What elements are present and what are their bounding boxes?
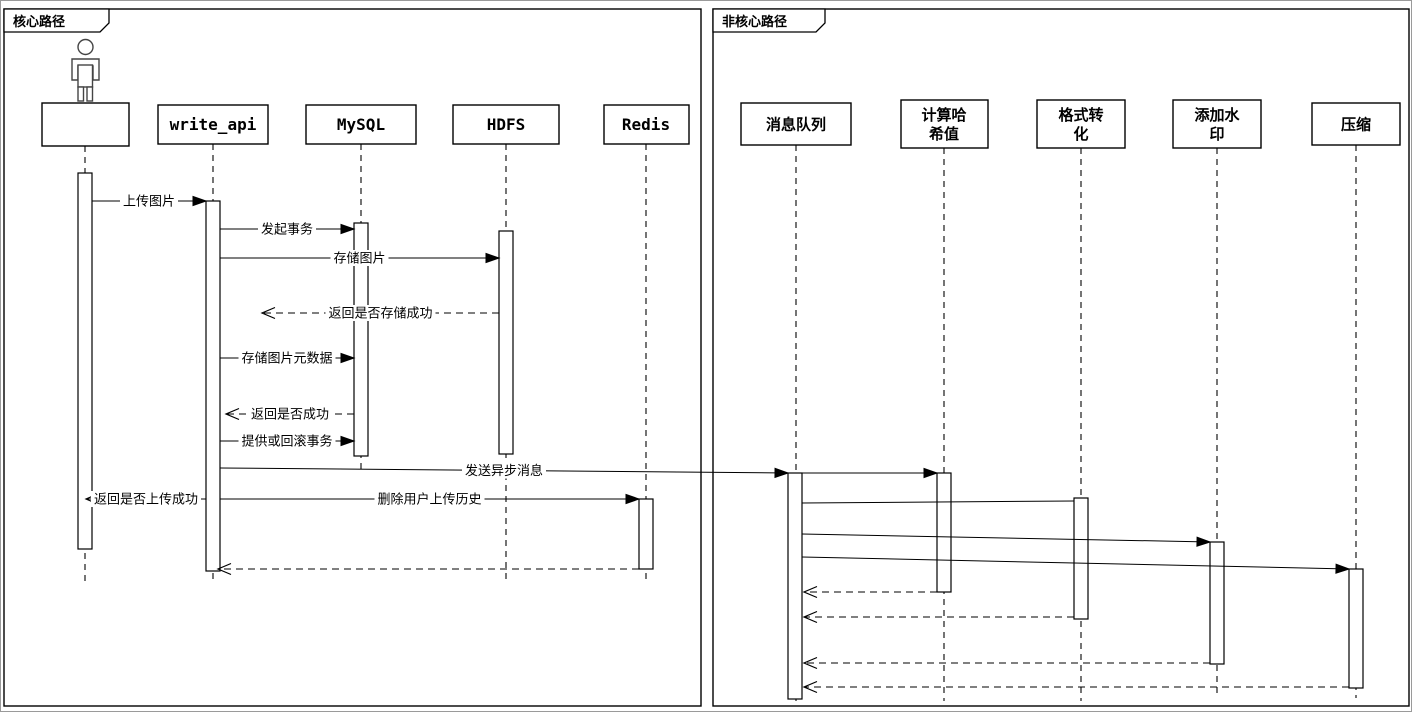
actor-icon xyxy=(72,40,99,102)
message-label-return-store-result: 返回是否存储成功 xyxy=(328,307,432,322)
participant-label-add-watermark: 添加水 xyxy=(1194,106,1240,124)
message-queue-activation xyxy=(788,473,802,699)
message-format-return xyxy=(804,612,1074,623)
message-return-upload-result: 返回是否上传成功 xyxy=(86,491,206,508)
participant-label-format-convert: 化 xyxy=(1073,125,1088,143)
participant-label-compress: 压缩 xyxy=(1341,116,1371,134)
message-hash-return xyxy=(804,587,937,598)
hdfs-activation xyxy=(499,231,513,454)
participant-label-write-api: write_api xyxy=(170,115,257,134)
message-begin-transaction: 发起事务 xyxy=(220,221,354,238)
message-store-image: 存储图片 xyxy=(220,250,499,267)
message-send-async-message: 发送异步消息 xyxy=(220,463,788,480)
message-return-store-result: 返回是否存储成功 xyxy=(262,305,499,322)
message-line-mq-to-watermark xyxy=(802,534,1210,542)
actor-head xyxy=(78,40,93,55)
participant-label-mysql: MySQL xyxy=(337,115,385,134)
redis-activation xyxy=(639,499,653,569)
arrowhead-filled-upload-image xyxy=(193,197,206,206)
message-label-store-image-metadata: 存储图片元数据 xyxy=(241,352,332,367)
message-label-upload-image: 上传图片 xyxy=(123,195,175,210)
arrowhead-filled-delete-upload-history xyxy=(626,495,639,504)
message-upload-image: 上传图片 xyxy=(92,193,206,210)
arrowhead-filled-store-image xyxy=(486,254,499,263)
message-mq-to-watermark xyxy=(802,534,1210,546)
participant-label-format-convert: 格式转 xyxy=(1058,106,1103,124)
user-activation xyxy=(78,173,92,549)
actor-left-leg xyxy=(78,87,84,101)
message-label-commit-or-rollback: 提供或回滚事务 xyxy=(241,434,332,450)
message-label-delete-upload-history: 删除用户上传历史 xyxy=(377,492,481,508)
participant-box-user xyxy=(42,103,129,146)
arrowhead-filled-mq-to-watermark xyxy=(1197,537,1210,546)
message-delete-upload-history: 删除用户上传历史 xyxy=(220,491,639,508)
message-redis-return xyxy=(218,564,639,575)
message-mq-to-hash xyxy=(802,469,937,478)
compress-activation xyxy=(1349,569,1363,688)
frame-label-non-core-path: 非核心路径 xyxy=(722,14,787,30)
actor-right-leg xyxy=(87,87,93,101)
compute-hash-activation xyxy=(937,473,951,592)
format-convert-activation xyxy=(1074,498,1088,619)
arrowhead-filled-store-image-metadata xyxy=(341,354,354,363)
message-store-image-metadata: 存储图片元数据 xyxy=(220,350,354,367)
actor-torso xyxy=(78,65,93,87)
message-label-store-image: 存储图片 xyxy=(333,252,385,267)
arrowhead-filled-send-async-message xyxy=(775,468,788,477)
message-label-begin-transaction: 发起事务 xyxy=(261,222,313,238)
participant-label-redis: Redis xyxy=(622,115,670,134)
frame-label-core-path: 核心路径 xyxy=(13,14,65,30)
sequence-diagram: 核心路径非核心路径上传图片发起事务存储图片返回是否存储成功存储图片元数据返回是否… xyxy=(0,0,1412,712)
add-watermark-activation xyxy=(1210,542,1224,664)
message-compress-return xyxy=(804,682,1349,693)
message-commit-or-rollback: 提供或回滚事务 xyxy=(220,433,354,450)
message-label-send-async-message: 发送异步消息 xyxy=(465,463,543,479)
participant-label-hdfs: HDFS xyxy=(487,115,526,134)
message-label-return-upload-result: 返回是否上传成功 xyxy=(94,493,198,508)
participant-label-message-queue: 消息队列 xyxy=(766,116,826,134)
sequence-diagram-svg: 核心路径非核心路径上传图片发起事务存储图片返回是否存储成功存储图片元数据返回是否… xyxy=(1,1,1412,712)
arrowhead-filled-mq-to-hash xyxy=(924,469,937,478)
message-label-return-result: 返回是否成功 xyxy=(251,408,329,423)
message-return-result: 返回是否成功 xyxy=(226,406,354,423)
participant-label-add-watermark: 印 xyxy=(1209,125,1224,143)
participant-label-compute-hash: 希值 xyxy=(929,125,959,143)
participant-label-compute-hash: 计算哈 xyxy=(921,106,966,124)
arrowhead-filled-mq-to-compress xyxy=(1336,564,1349,573)
message-watermark-return xyxy=(804,658,1210,669)
write-api-activation xyxy=(206,201,220,571)
arrowhead-filled-commit-or-rollback xyxy=(341,437,354,446)
arrowhead-filled-begin-transaction xyxy=(341,225,354,234)
